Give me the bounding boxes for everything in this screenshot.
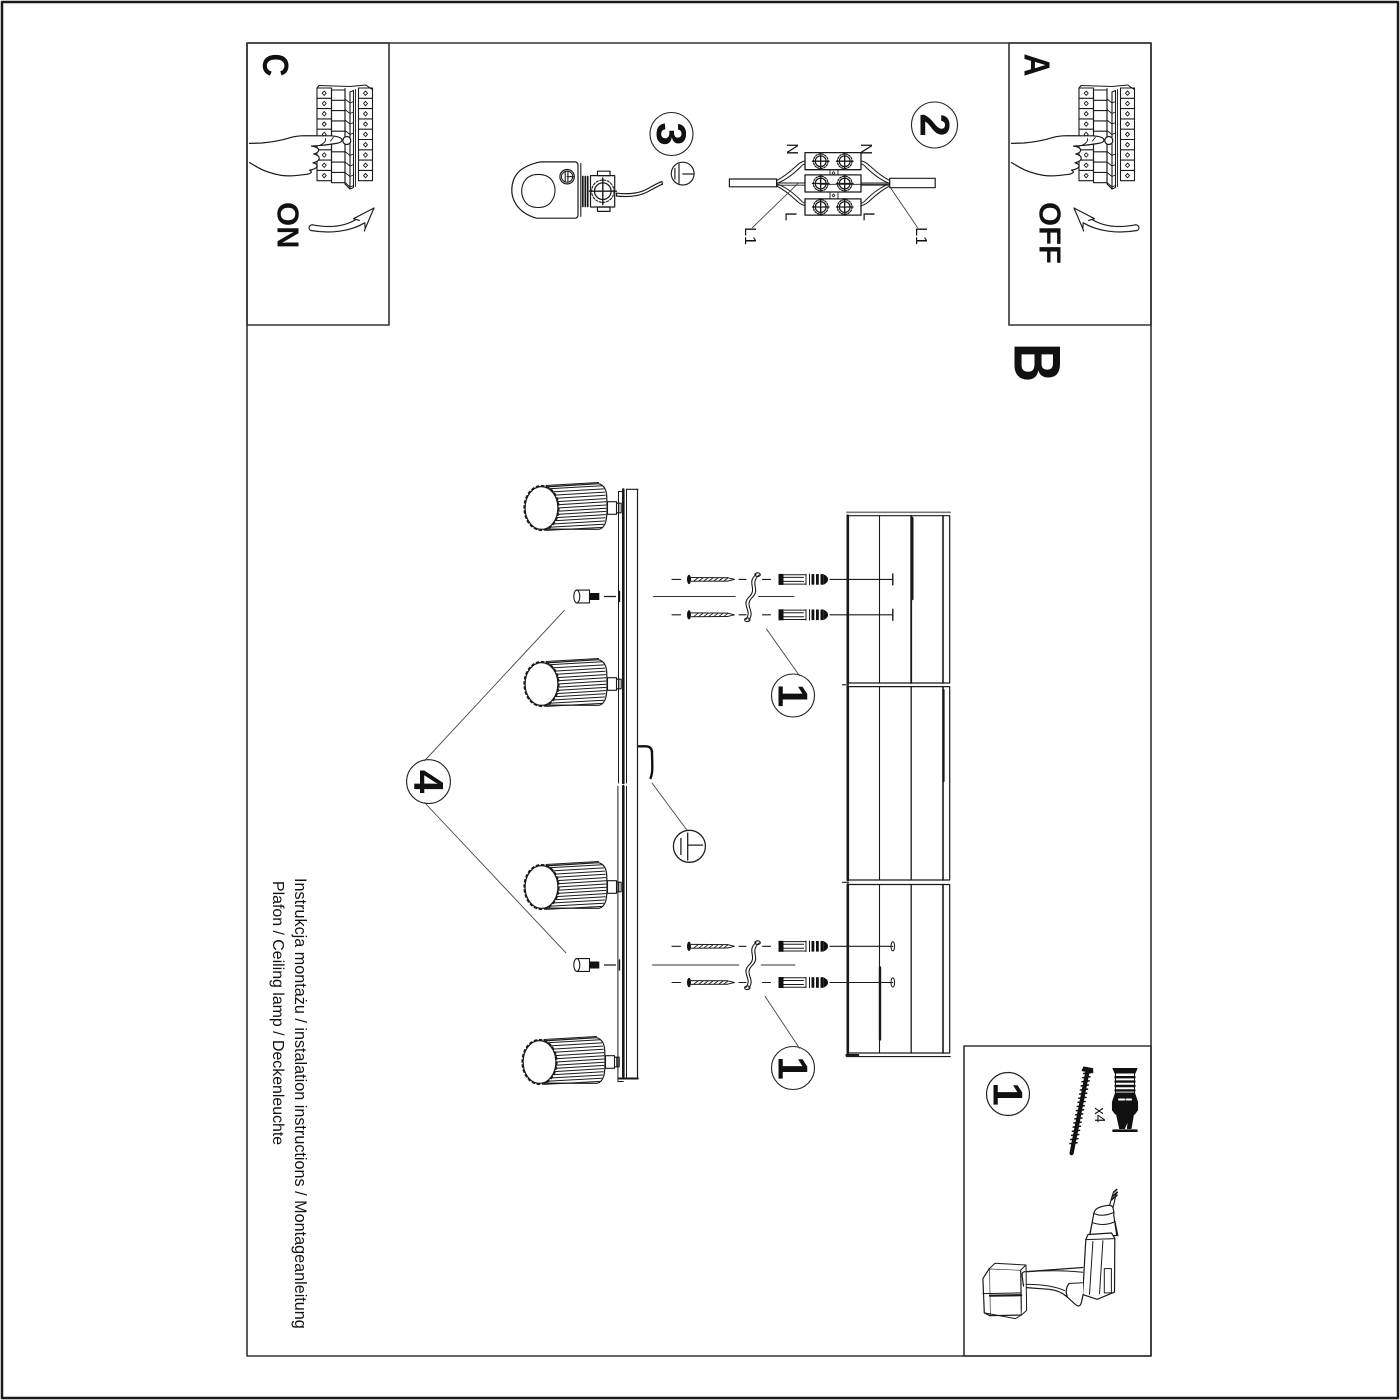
- svg-text:N: N: [857, 143, 874, 155]
- svg-text:B: B: [1000, 343, 1074, 382]
- svg-text:3: 3: [648, 122, 695, 145]
- svg-text:C: C: [254, 54, 294, 77]
- svg-text:L1: L1: [912, 227, 929, 245]
- svg-text:L: L: [782, 212, 799, 221]
- svg-text:A: A: [1016, 54, 1056, 77]
- svg-text:x4: x4: [1091, 1107, 1107, 1122]
- svg-text:N: N: [783, 143, 800, 155]
- svg-text:ON: ON: [271, 202, 306, 249]
- svg-text:1: 1: [770, 684, 817, 707]
- svg-text:4: 4: [405, 770, 452, 794]
- svg-text:2: 2: [912, 113, 959, 136]
- svg-text:1: 1: [985, 1082, 1032, 1105]
- svg-text:L1: L1: [741, 227, 758, 245]
- svg-text:L: L: [860, 212, 877, 221]
- svg-text:1: 1: [770, 1056, 817, 1079]
- svg-text:OFF: OFF: [1033, 202, 1068, 264]
- svg-text:Plafon / Ceiling lamp / Decken: Plafon / Ceiling lamp / Deckenleuchte: [269, 881, 286, 1145]
- svg-text:Instrukcja montażu / instalati: Instrukcja montażu / instalation instruc…: [291, 878, 309, 1329]
